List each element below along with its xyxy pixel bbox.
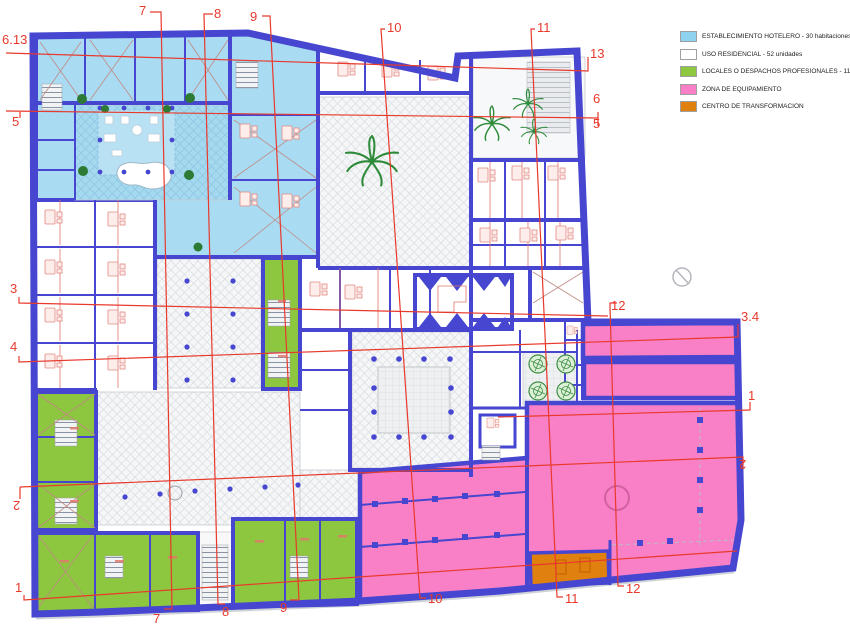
legend-label-hotel: ESTABLECIMIENTO HOTELERO - 30 habitacion… xyxy=(702,33,850,40)
grid-label-bottom-10: 10 xyxy=(428,592,442,605)
grid-label-bottom-right-12: 12 xyxy=(626,582,640,595)
grid-label-left-6-13: 6.13 xyxy=(2,33,27,46)
grid-label-top-9: 9 xyxy=(250,10,257,23)
grid-label-right-13: 13 xyxy=(590,47,604,60)
grid-label-right-6: 6 xyxy=(593,92,600,105)
grid-label-right-2: 2 xyxy=(739,458,746,471)
grid-label-top-7: 7 xyxy=(139,4,146,17)
grid-label-left-4: 4 xyxy=(10,340,17,353)
legend-label-locales: LOCALES O DESPACHOS PROFESIONALES - 11 u… xyxy=(702,68,850,75)
legend-swatch-residencial xyxy=(680,49,697,60)
central-top-courtyard xyxy=(318,97,471,268)
legend-label-equipamiento: ZONA DE EQUIPAMIENTO xyxy=(702,86,782,93)
legend-swatch-equipamiento xyxy=(680,84,697,95)
grid-label-bottom-8: 8 xyxy=(222,605,229,618)
grid-label-left-5: 5 xyxy=(12,115,19,128)
grid-label-top-11: 11 xyxy=(537,21,551,34)
fountain xyxy=(132,125,142,135)
floor-plan: ESTABLECIMIENTO HOTELERO - 30 habitacion… xyxy=(0,0,850,634)
legend-item-transformacion: CENTRO DE TRANSFORMACION xyxy=(680,98,850,116)
legend-swatch-hotel xyxy=(680,31,697,42)
legend-item-hotel: ESTABLECIMIENTO HOTELERO - 30 habitacion… xyxy=(680,28,850,46)
legend-label-residencial: USO RESIDENCIAL - 52 unidades xyxy=(702,51,802,58)
legend-item-residencial: USO RESIDENCIAL - 52 unidades xyxy=(680,46,850,64)
grid-label-bottom-9: 9 xyxy=(280,601,287,614)
grid-label-bottom-11: 11 xyxy=(565,592,579,605)
grid-label-bottom-7: 7 xyxy=(153,612,160,625)
legend-item-equipamiento: ZONA DE EQUIPAMIENTO xyxy=(680,81,850,99)
legend-swatch-transformacion xyxy=(680,101,697,112)
grid-label-top-8: 8 xyxy=(214,7,221,20)
grid-label-right-5: 5 xyxy=(593,117,600,130)
legend-item-locales: LOCALES O DESPACHOS PROFESIONALES - 11 u… xyxy=(680,63,850,81)
legend: ESTABLECIMIENTO HOTELERO - 30 habitacion… xyxy=(680,28,850,116)
grid-label-left-2: 2 xyxy=(13,499,20,512)
legend-label-transformacion: CENTRO DE TRANSFORMACION xyxy=(702,103,804,110)
grid-label-left-3: 3 xyxy=(10,282,17,295)
grid-label-right-3-4: 3.4 xyxy=(741,310,759,323)
grid-label-left-1: 1 xyxy=(15,581,22,594)
grid-label-right-1: 1 xyxy=(748,389,755,402)
grid-label-right-12: 12 xyxy=(611,299,625,312)
legend-swatch-locales xyxy=(680,66,697,77)
grid-label-top-10: 10 xyxy=(387,21,401,34)
